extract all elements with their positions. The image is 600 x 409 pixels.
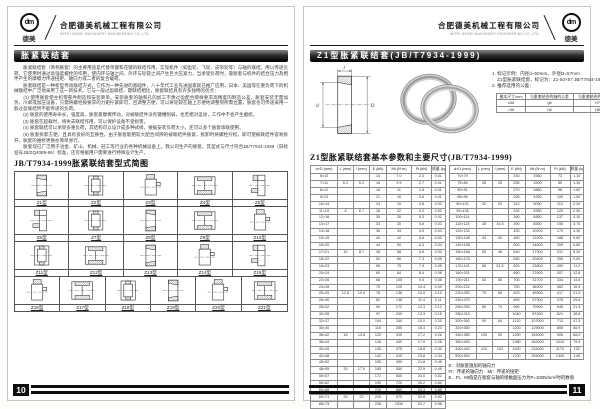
table-cell: 148: [570, 353, 584, 360]
table-cell: [476, 339, 492, 346]
table-cell: 5.60: [570, 236, 584, 243]
type-label: Z2型: [69, 199, 122, 206]
table-cell: [354, 187, 370, 194]
table-cell: 56: [476, 263, 492, 270]
table-cell: 14.6: [570, 277, 584, 284]
table-cell: [338, 339, 354, 346]
table-cell: [338, 319, 354, 326]
table-cell: [354, 284, 370, 291]
table-cell: 84: [492, 319, 508, 326]
table-cell: 14×18: [311, 229, 338, 236]
table-cell: [354, 229, 370, 236]
type-label: Z17型: [60, 304, 104, 311]
table-cell: [338, 277, 354, 284]
table-cell: 340: [387, 339, 412, 346]
type-diagram-cell: Z18型: [106, 277, 151, 311]
table-cell: 31700: [525, 277, 550, 284]
table-section-title: Z1型胀紧联结套基本参数和主要尺寸(JB/T7934-1999): [310, 152, 584, 163]
table-cell: 40: [370, 236, 387, 243]
table-row: 19×2356757.90.05: [311, 263, 446, 270]
type-grid-row: Z1型Z2型Z3型Z4型Z5型: [15, 172, 287, 207]
tolerance-table: 基本尺寸/mm与胀套结合的轴的公差与胀套结合的孔的公差≤38g6H7>38h8H…: [496, 93, 600, 114]
table-cell: 4.3: [412, 215, 432, 222]
column-header: 基本尺寸/mm: [497, 93, 526, 100]
type-diagram-cell: Z17型: [60, 277, 105, 311]
table-cell: 6×10: [311, 174, 338, 181]
table-row: 15×1940425.60.03: [311, 236, 446, 243]
parameters-tables: d×D (mm)L (mm)l (mm)E (kN)Mt (N·m)Ft (kN…: [310, 165, 584, 409]
table-cell: 700: [508, 277, 525, 284]
marking-notes: 1. 标记示例：内径d=50mm，外径D=57mm Z1型胀紧联结套，标记为：Z…: [492, 71, 600, 90]
table-cell: 75×84: [449, 180, 476, 187]
table-cell: [338, 374, 354, 381]
table-row: 45×5215549021.80.45: [311, 360, 446, 367]
table-cell: 12.3: [412, 305, 432, 312]
table-cell: 45×52: [311, 360, 338, 367]
section-banner: Z1型胀紧联结套(JB/T7934-1999): [310, 50, 584, 62]
table-row: 320×360120012900080656.9: [449, 325, 584, 332]
table-cell: 1.10: [570, 174, 584, 181]
table-cell: [354, 305, 370, 312]
table-row: 500×54017002940001340148: [449, 353, 584, 360]
table-cell: 960: [508, 305, 525, 312]
paragraph: 胀套现已广泛用于冶金、矿山、机械、轻工等行业的各种机械设备上。我公司生产的胀套，…: [14, 144, 288, 155]
table-cell: 6.7: [354, 208, 370, 215]
table-cell: 79.5: [570, 339, 584, 346]
table-cell: [338, 263, 354, 270]
table-cell: 7×11: [311, 180, 338, 187]
table-cell: 360: [508, 215, 525, 222]
table-cell: 621: [550, 312, 570, 319]
table-cell: 19×23: [311, 263, 338, 270]
table-cell: 6.3: [338, 180, 354, 187]
table-row: 65×73228103031.70.98: [311, 401, 446, 408]
company-name-en: HEFEI DEMEI MACHINERY ENGINEERING CO.,LT…: [60, 32, 162, 36]
table-row: 17×21108.748586.80.04: [311, 249, 446, 256]
table-cell: 85: [550, 180, 570, 187]
type-label: Z21型: [242, 304, 287, 311]
table-cell: 0.45: [432, 360, 446, 367]
table-cell: [338, 401, 354, 408]
paragraph: (4) 胀套联结可以承受多重负荷，其结构可以设计成多种式样，根据安装负荷大小，还…: [14, 125, 288, 131]
table-row: 160×178580204002559.60: [449, 256, 584, 263]
table-cell: 58: [387, 249, 412, 256]
table-cell: 11×15: [311, 208, 338, 215]
footer-rule: [31, 385, 289, 394]
table-cell: [338, 215, 354, 222]
table-cell: [492, 208, 508, 215]
table-cell: 135: [370, 346, 387, 353]
table-cell: 40×45: [311, 346, 338, 353]
table-cell: 8×12: [311, 187, 338, 194]
table-cell: 17×21: [311, 249, 338, 256]
sleeve-e-icon: [196, 277, 240, 304]
table-cell: 0.26: [432, 332, 446, 339]
table-cell: 0.12: [432, 305, 446, 312]
table-cell: 3.8: [412, 201, 432, 208]
table-cell: ≤38: [497, 100, 526, 107]
sleeve-a-icon: [15, 172, 68, 199]
table-cell: [338, 201, 354, 208]
table-cell: 17.2: [412, 332, 432, 339]
sleeve-d-icon: [60, 277, 104, 304]
table-cell: 38: [476, 222, 492, 229]
table-cell: 74: [492, 305, 508, 312]
table-cell: 0.04: [432, 243, 446, 250]
table-cell: 0.03: [432, 236, 446, 243]
table-cell: 0.23: [432, 325, 446, 332]
table-cell: g6: [526, 100, 574, 107]
table-cell: 73: [550, 174, 570, 181]
table-row: 40×4513537518.80.30: [311, 346, 446, 353]
page-left: dm 德美 合肥德美机械工程有限公司 HEFEI DEMEI MACHINERY…: [7, 6, 295, 401]
table-cell: 57300: [525, 298, 550, 305]
sleeve-a-icon: [124, 242, 177, 269]
table-cell: [354, 263, 370, 270]
column-header: l (mm): [492, 166, 508, 174]
table-cell: 15×19: [311, 236, 338, 243]
table-cell: 310: [387, 332, 412, 339]
page-number: 10: [13, 384, 29, 396]
table-cell: [354, 401, 370, 408]
table-cell: [354, 312, 370, 319]
table-cell: [492, 339, 508, 346]
table-cell: 22: [387, 208, 412, 215]
table-cell: 0.01: [432, 174, 446, 181]
type-label: Z19型: [151, 304, 195, 311]
note-line: 2. 推荐选用的公差：: [492, 83, 600, 89]
table-cell: 3850: [525, 187, 550, 194]
type-diagram-cell: Z7型: [69, 207, 123, 241]
table-cell: [476, 194, 492, 201]
table-cell: 27600: [525, 270, 550, 277]
table-cell: 125: [550, 208, 570, 215]
table-cell: 80×91: [449, 187, 476, 194]
sleeve-d-icon: [69, 242, 122, 269]
table-cell: 65×73: [311, 401, 338, 408]
table-cell: 310: [508, 201, 525, 208]
table-cell: 620: [508, 263, 525, 270]
table-cell: 540: [508, 249, 525, 256]
table-cell: H7: [574, 100, 600, 107]
table-cell: 8: [338, 208, 354, 215]
table-cell: 31.5: [570, 305, 584, 312]
table-cell: 24.0: [412, 374, 432, 381]
table-cell: 29: [492, 201, 508, 208]
table-cell: 11.4: [412, 298, 432, 305]
table-cell: 9.5: [387, 180, 412, 187]
table-cell: 290: [508, 194, 525, 201]
table-cell: 8.20: [570, 249, 584, 256]
type-diagram-cell: Z11型: [15, 242, 69, 276]
table-cell: [492, 187, 508, 194]
company-block: 合肥德美机械工程有限公司 HEFEI DEMEI MACHINERY ENGIN…: [438, 20, 540, 36]
table-cell: 23800: [525, 263, 550, 270]
type-diagram-cell: Z12型: [69, 242, 123, 276]
table-cell: 31.7: [412, 401, 432, 408]
table-row: 12×1630264.30.02: [311, 215, 446, 222]
figure-notes: 1. 标记示例：内径d=50mm，外径D=57mm Z1型胀紧联结套，标记为：Z…: [492, 65, 600, 149]
table-cell: [476, 208, 492, 215]
table-cell: 45900: [525, 291, 550, 298]
table-cell: 100×114: [449, 215, 476, 222]
table-cell: 25.8: [570, 298, 584, 305]
column-header: Mt (N·m): [387, 166, 412, 174]
table-cell: 0.20: [432, 319, 446, 326]
table-cell: H8: [574, 106, 600, 113]
table-cell: 24: [370, 201, 387, 208]
table-cell: 25×29: [311, 291, 338, 298]
table-cell: [476, 243, 492, 250]
table-row: 300×3409084112010700071347.5: [449, 319, 584, 326]
table-cell: 112: [550, 201, 570, 208]
table-cell: 545: [550, 305, 570, 312]
table-cell: 20×24: [311, 270, 338, 277]
table-cell: 19: [387, 201, 412, 208]
table-cell: 172: [370, 374, 387, 381]
logo-icon: dm: [20, 13, 39, 32]
table-cell: 66: [387, 256, 412, 263]
table-cell: 16: [387, 194, 412, 201]
table-cell: 26: [370, 208, 387, 215]
table-cell: [354, 256, 370, 263]
table-footnotes: E：对胀套施加的轴向力Ft：传递的轴向力 Mt：传递的扭矩E、Ft、Mt值是在胀…: [449, 363, 585, 381]
dim-label-d: d: [316, 103, 319, 109]
table-cell: 320×360: [449, 325, 476, 332]
table-cell: 0.01: [432, 194, 446, 201]
table-cell: 340×380: [449, 332, 476, 339]
table-cell: 90: [476, 319, 492, 326]
table-cell: [338, 270, 354, 277]
table-cell: 500: [508, 243, 525, 250]
table-row: 26×308214811.40.11: [311, 298, 446, 305]
type-diagram-cell: Z6型: [15, 207, 69, 241]
table-cell: 7.3: [412, 256, 432, 263]
table-cell: [338, 346, 354, 353]
table-cell: 172: [387, 305, 412, 312]
table-cell: [492, 270, 508, 277]
column-header: L (mm): [476, 166, 492, 174]
table-cell: 56: [370, 263, 387, 270]
type-diagram-cell: Z5型: [233, 172, 287, 206]
table-row: 190×21163587003170033414.6: [449, 277, 584, 284]
table-cell: 0.03: [432, 229, 446, 236]
table-cell: [476, 187, 492, 194]
table-cell: [338, 256, 354, 263]
table-cell: 375: [387, 346, 412, 353]
table-cell: 0.01: [432, 187, 446, 194]
table-cell: 10.4: [354, 291, 370, 298]
table-cell: 120×134: [449, 229, 476, 236]
table-cell: 660: [508, 270, 525, 277]
table-cell: 330: [508, 208, 525, 215]
table-cell: 17.9: [412, 339, 432, 346]
table-cell: 160×178: [449, 256, 476, 263]
table-cell: [338, 187, 354, 194]
table-cell: [338, 312, 354, 319]
table-cell: 5.3: [354, 180, 370, 187]
table-cell: 2.7: [412, 180, 432, 187]
table-cell: 75: [387, 263, 412, 270]
table-cell: 820: [508, 291, 525, 298]
sleeve-a-icon: [124, 207, 177, 234]
table-cell: 104: [370, 319, 387, 326]
sleeve-d-icon: [242, 277, 287, 304]
dim-label-D: D: [370, 103, 375, 109]
table-cell: 200: [387, 312, 412, 319]
table-cell: 1.60: [570, 187, 584, 194]
table-cell: 140×158: [449, 243, 476, 250]
table-cell: 38.8: [570, 312, 584, 319]
type-label: Z1型: [15, 199, 68, 206]
table-cell: 400×440: [449, 346, 476, 353]
type-diagram-cell: Z8型: [124, 207, 178, 241]
table-cell: 15.0: [412, 319, 432, 326]
table-cell: 1030: [387, 401, 412, 408]
table-cell: 36×42: [311, 332, 338, 339]
table-row: ≤38g6H7: [497, 100, 600, 107]
table-cell: 16×20: [311, 243, 338, 250]
table-row: 35×4011528516.30.23: [311, 325, 446, 332]
table-cell: 182000: [525, 339, 550, 346]
table-cell: 90: [370, 305, 387, 312]
sleeve-a-icon: [151, 277, 195, 304]
table-cell: 10.9: [412, 291, 432, 298]
table-cell: 10: [338, 249, 354, 256]
table-cell: [476, 229, 492, 236]
table-cell: [476, 256, 492, 263]
table-cell: 0.02: [432, 208, 446, 215]
type-label: Z15型: [233, 269, 287, 276]
page-right: 合肥德美机械工程有限公司 HEFEI DEMEI MACHINERY ENGIN…: [303, 6, 591, 401]
table-cell: 68.0: [570, 332, 584, 339]
table-cell: 255: [508, 180, 525, 187]
table-cell: 84: [387, 270, 412, 277]
table-row: 14×1836344.90.03: [311, 229, 446, 236]
company-name-en: HEFEI DEMEI MACHINERY ENGINEERING CO.,LT…: [438, 32, 540, 36]
sleeve-c-icon: [15, 207, 68, 234]
type-label: Z12型: [69, 269, 122, 276]
column-header: E (kN): [508, 166, 525, 174]
table-cell: 2.50: [570, 208, 584, 215]
table-cell: 42: [387, 236, 412, 243]
table-cell: 300×340: [449, 319, 476, 326]
type-diagram-cell: Z14型: [178, 242, 232, 276]
table-cell: 190×211: [449, 277, 476, 284]
table-cell: 42×48: [311, 353, 338, 360]
table-row: 360×4001380182000101079.5: [449, 339, 584, 346]
table-row: 11×1586.726224.00.02: [311, 208, 446, 215]
table-row: >38h8H8: [497, 106, 600, 113]
page-number: 11: [569, 384, 585, 396]
table-cell: 906: [550, 332, 570, 339]
table-cell: 105: [387, 277, 412, 284]
table-cell: 6850: [525, 215, 550, 222]
table-cell: 68: [370, 277, 387, 284]
table-cell: 22.9: [412, 367, 432, 374]
table-cell: 6.3: [412, 243, 432, 250]
table-cell: 12.8: [570, 270, 584, 277]
table-row: 100×11436068501373.10: [449, 215, 584, 222]
table-cell: 33: [370, 222, 387, 229]
table-cell: [476, 270, 492, 277]
table-cell: [338, 222, 354, 229]
sleeve-d-icon: [178, 207, 231, 234]
table-cell: [476, 353, 492, 360]
table-cell: [476, 174, 492, 181]
type-diagram-cell: Z21型: [242, 277, 287, 311]
table-cell: 48×55: [311, 367, 338, 374]
type-label: Z20型: [196, 304, 240, 311]
paragraph: (3) 胀套在超载时，将失去联结作用，可以保护设备不受损害。: [14, 119, 288, 125]
type-diagram-cell: Z15型: [233, 242, 287, 276]
table-cell: 550: [387, 367, 412, 374]
table-cell: 7.9: [412, 263, 432, 270]
table-cell: 0.15: [432, 312, 446, 319]
table-cell: 63: [476, 277, 492, 284]
table-cell: 170×191: [449, 263, 476, 270]
note-line: E、Ft、Mt值是在胀套与轴的接触面压力为P=100N/mm²时的数值: [449, 375, 585, 381]
table-cell: 417: [550, 291, 570, 298]
table-cell: 307: [550, 270, 570, 277]
table-row: 6×10147.02.30.01: [311, 174, 446, 181]
paragraph: (2) 胀套的使用寿命长，强度高。胀套靠摩擦传动，对被联结件没有键槽削弱，也无相…: [14, 112, 288, 118]
table-row: 48×552017.516555022.90.49: [311, 367, 446, 374]
table-cell: 490: [387, 360, 412, 367]
sleeve-c-icon: [233, 172, 287, 199]
table-cell: 2.8: [412, 187, 432, 194]
sleeve-d-icon: [178, 172, 231, 199]
table-cell: 18.8: [412, 346, 432, 353]
table-cell: 1200: [508, 325, 525, 332]
table-cell: 713: [550, 319, 570, 326]
column-header: Ft (kN): [412, 166, 432, 174]
type-label: Z8型: [124, 234, 177, 241]
table-cell: 0.11: [432, 298, 446, 305]
table-cell: 478: [550, 298, 570, 305]
table-row: 130×1484440460122001885.60: [449, 236, 584, 243]
table-cell: 460: [508, 236, 525, 243]
table-cell: 170: [550, 229, 570, 236]
table-cell: 102: [570, 346, 584, 353]
type-diagram-cell: Z13型: [124, 242, 178, 276]
table-cell: 28: [476, 180, 492, 187]
table-cell: 6.80: [570, 243, 584, 250]
company-logo: dm 德美: [16, 13, 42, 43]
table-cell: 580: [508, 256, 525, 263]
table-cell: 200×224: [449, 284, 476, 291]
table-cell: 36: [370, 229, 387, 236]
table-cell: 0.06: [432, 270, 446, 277]
table-cell: [354, 339, 370, 346]
sleeve-b-icon: [69, 172, 122, 199]
type-diagram-cell: Z3型: [124, 172, 178, 206]
table-cell: 4.6: [412, 222, 432, 229]
table-row: 8×1218112.80.01: [311, 187, 446, 194]
table-cell: h8: [526, 106, 574, 113]
table-cell: [338, 325, 354, 332]
table-row: 20×2460848.40.06: [311, 270, 446, 277]
table-cell: 1.30: [570, 180, 584, 187]
table-cell: 240: [387, 319, 412, 326]
table-cell: 34.5: [492, 222, 508, 229]
paragraph: 胀套联结是一种新型传动联结方式，它作为一种先进的基础件，八十年代工业先进国家就已…: [14, 83, 288, 94]
table-cell: 165: [370, 367, 387, 374]
table-cell: 70×79: [449, 174, 476, 181]
product-photo-rings: [392, 65, 488, 145]
table-row: 38×4412834017.90.28: [311, 339, 446, 346]
table-cell: 280×315: [449, 312, 476, 319]
